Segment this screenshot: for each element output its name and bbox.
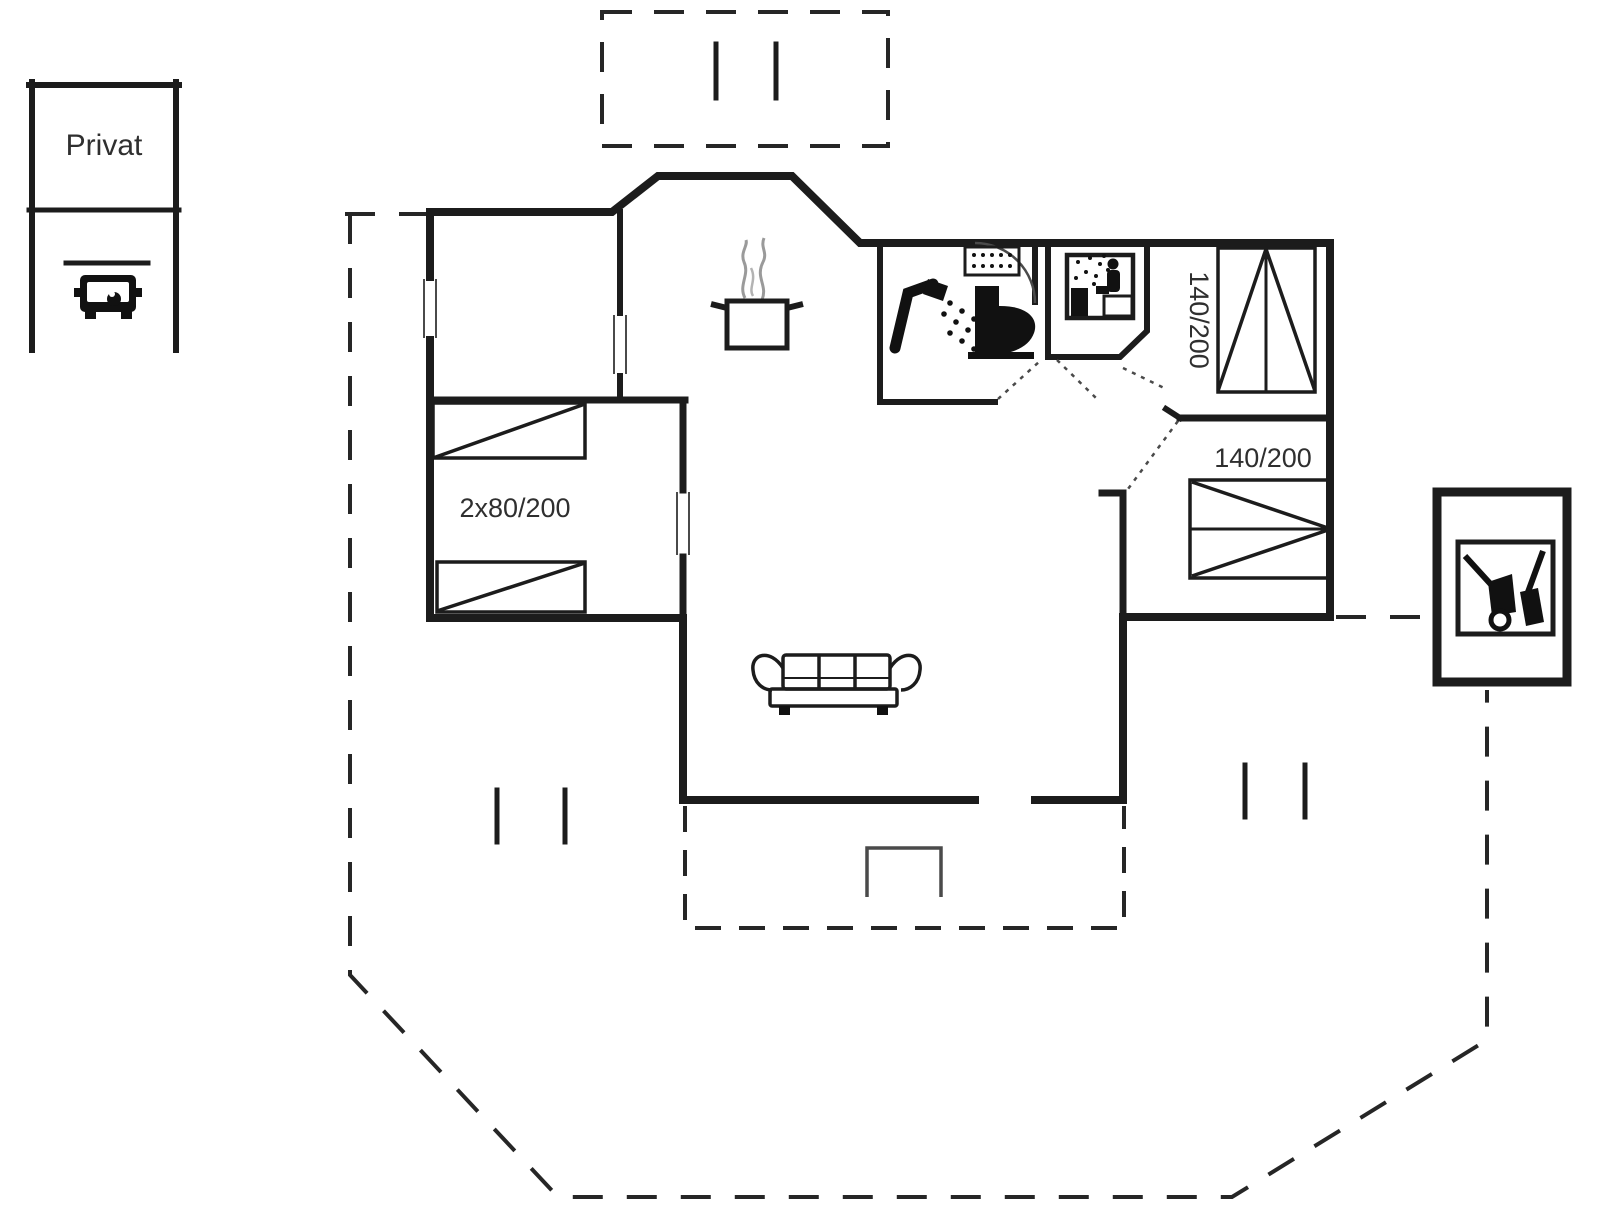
window-left-wall <box>424 279 436 338</box>
door-swing <box>1123 368 1166 389</box>
bedroom-middle-right-bed: 140/200 <box>1190 443 1330 578</box>
door-swing <box>998 361 1040 399</box>
bed-size-label: 140/200 <box>1184 271 1214 369</box>
sauna-icon <box>1067 254 1133 318</box>
car-icon <box>66 263 148 319</box>
shed-box <box>1437 492 1567 682</box>
garden-tools-icon <box>1458 542 1553 634</box>
carport-box: Privat <box>29 82 179 350</box>
bedroom-left-beds: 2x80/200 <box>433 403 585 612</box>
sofa-icon <box>753 655 920 715</box>
parking-label: Privat <box>66 129 143 162</box>
bed-size-label: 140/200 <box>1214 443 1312 473</box>
door-left-bedroom <box>677 492 689 555</box>
bedroom-top-right-bed: 140/200 <box>1184 248 1315 392</box>
terrace-step <box>867 848 941 897</box>
top-terrace <box>602 12 888 146</box>
door-hall-kitchen <box>614 315 626 374</box>
sink-icon <box>965 247 1019 275</box>
toilet-icon <box>968 286 1035 359</box>
bottom-terrace <box>497 765 1305 928</box>
floor-plan-page: Privat <box>0 0 1606 1205</box>
shower-icon <box>895 279 989 352</box>
door-swing <box>1128 421 1178 489</box>
door-swing <box>1057 360 1096 398</box>
cooking-pot-icon <box>711 238 803 348</box>
bed-size-label: 2x80/200 <box>459 493 570 523</box>
floor-plan: Privat <box>0 0 1606 1205</box>
